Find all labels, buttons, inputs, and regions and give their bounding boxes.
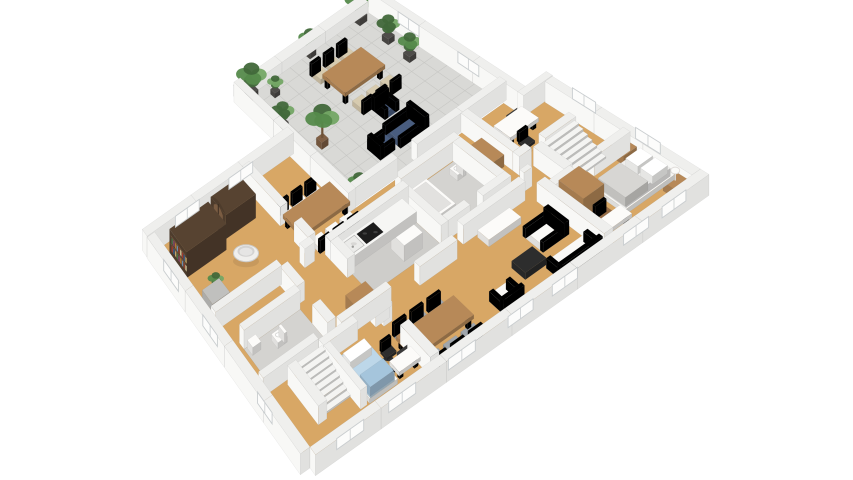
floor-plan-canvas (0, 0, 853, 480)
round-lounge-chair (233, 245, 259, 268)
floor-plan-3d-render (0, 0, 853, 480)
